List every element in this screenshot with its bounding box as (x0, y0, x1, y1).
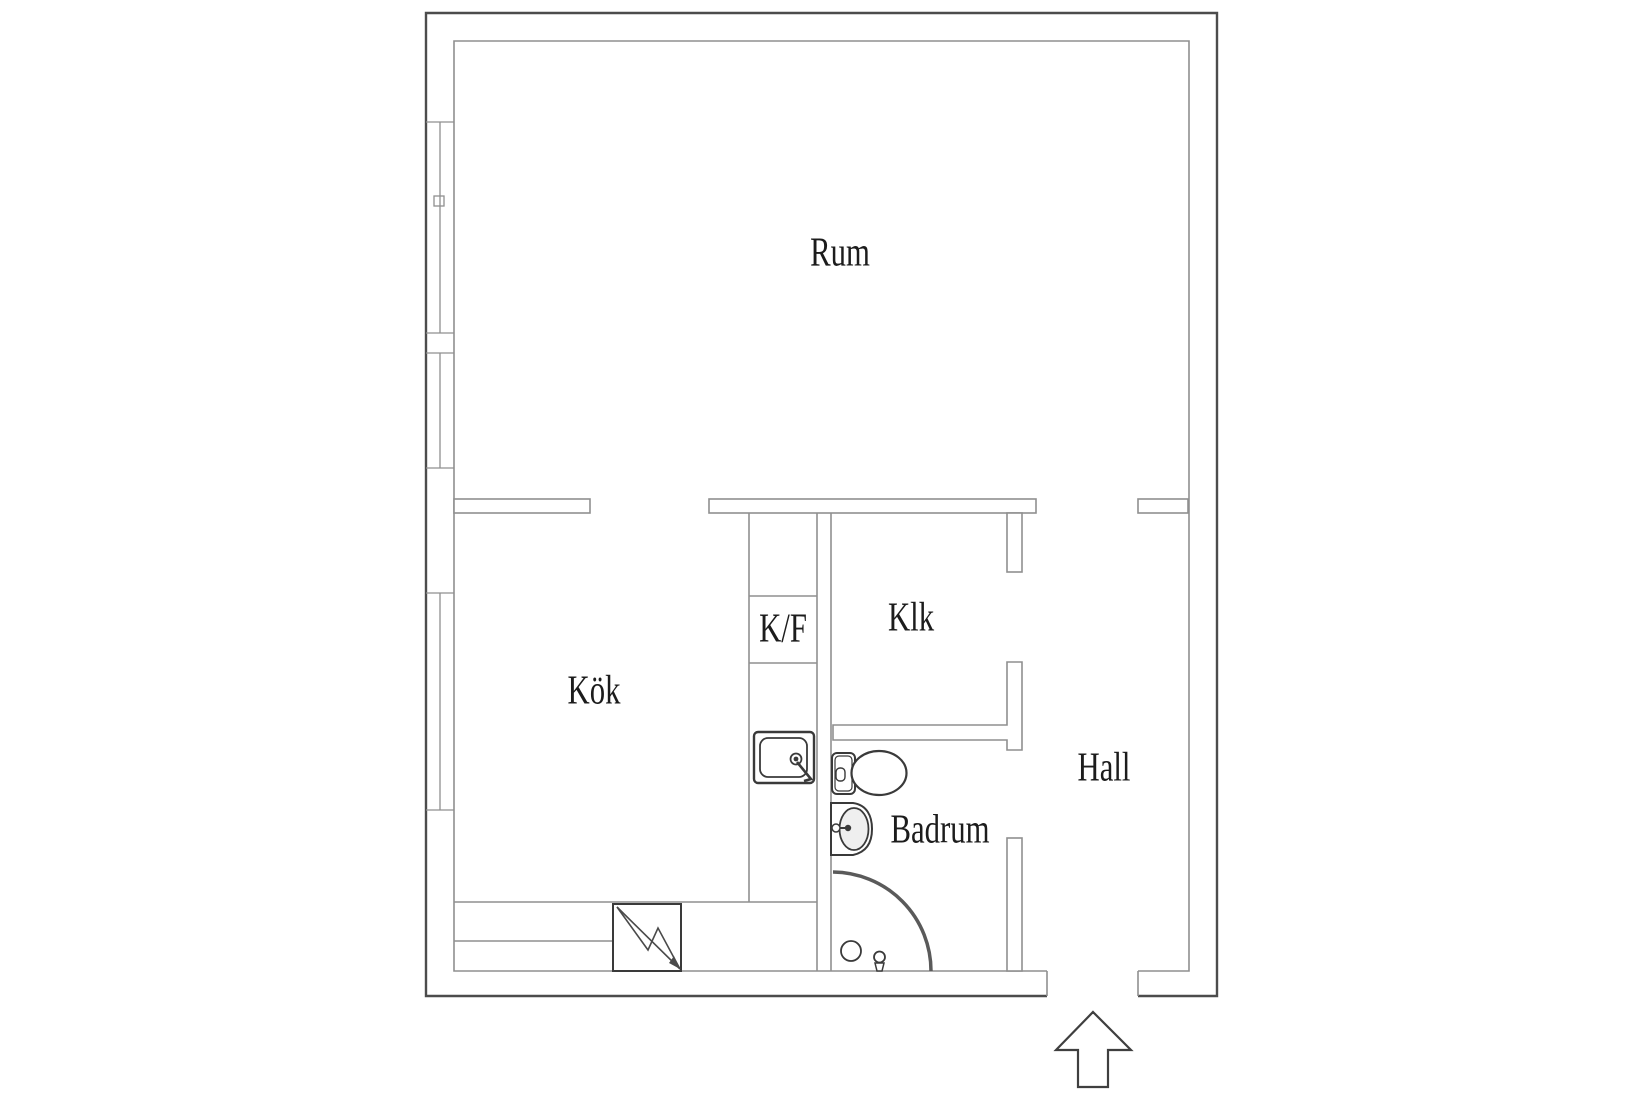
floorplan-drawing (0, 0, 1650, 1100)
wall-rum-kok (454, 499, 590, 513)
shower-icon (833, 872, 931, 971)
window-kitchen (426, 593, 454, 810)
room-label-hall: Hall (1078, 747, 1131, 788)
wall-klk-badrum (833, 662, 1022, 750)
washbasin-icon (831, 803, 872, 855)
window-top (426, 122, 454, 333)
entrance-arrow-icon (1056, 1012, 1131, 1087)
window-middle (426, 353, 454, 468)
window-latch-icon (434, 196, 444, 206)
wall-klk-hall-upper (1007, 513, 1022, 572)
room-label-klk: Klk (888, 597, 934, 638)
electrical-panel-icon (613, 904, 681, 971)
wall-badrum-hall-lower (1007, 838, 1022, 971)
room-label-kok: Kök (568, 670, 621, 711)
room-label-rum: Rum (810, 232, 870, 273)
room-label-badrum: Badrum (890, 809, 989, 850)
shower-mixer-icon (874, 952, 885, 972)
kitchen-sink-icon (754, 732, 814, 783)
toilet-icon (832, 751, 907, 795)
wall-rum-hall (1138, 499, 1188, 513)
floor-drain-icon (841, 941, 861, 961)
entrance-door-opening (1047, 971, 1138, 996)
room-label-kf: K/F (759, 608, 807, 649)
floorplan-canvas: Rum Kök K/F Klk Hall Badrum (0, 0, 1650, 1100)
interior-walls (454, 499, 1188, 971)
wall-rum-klk (709, 499, 1036, 513)
